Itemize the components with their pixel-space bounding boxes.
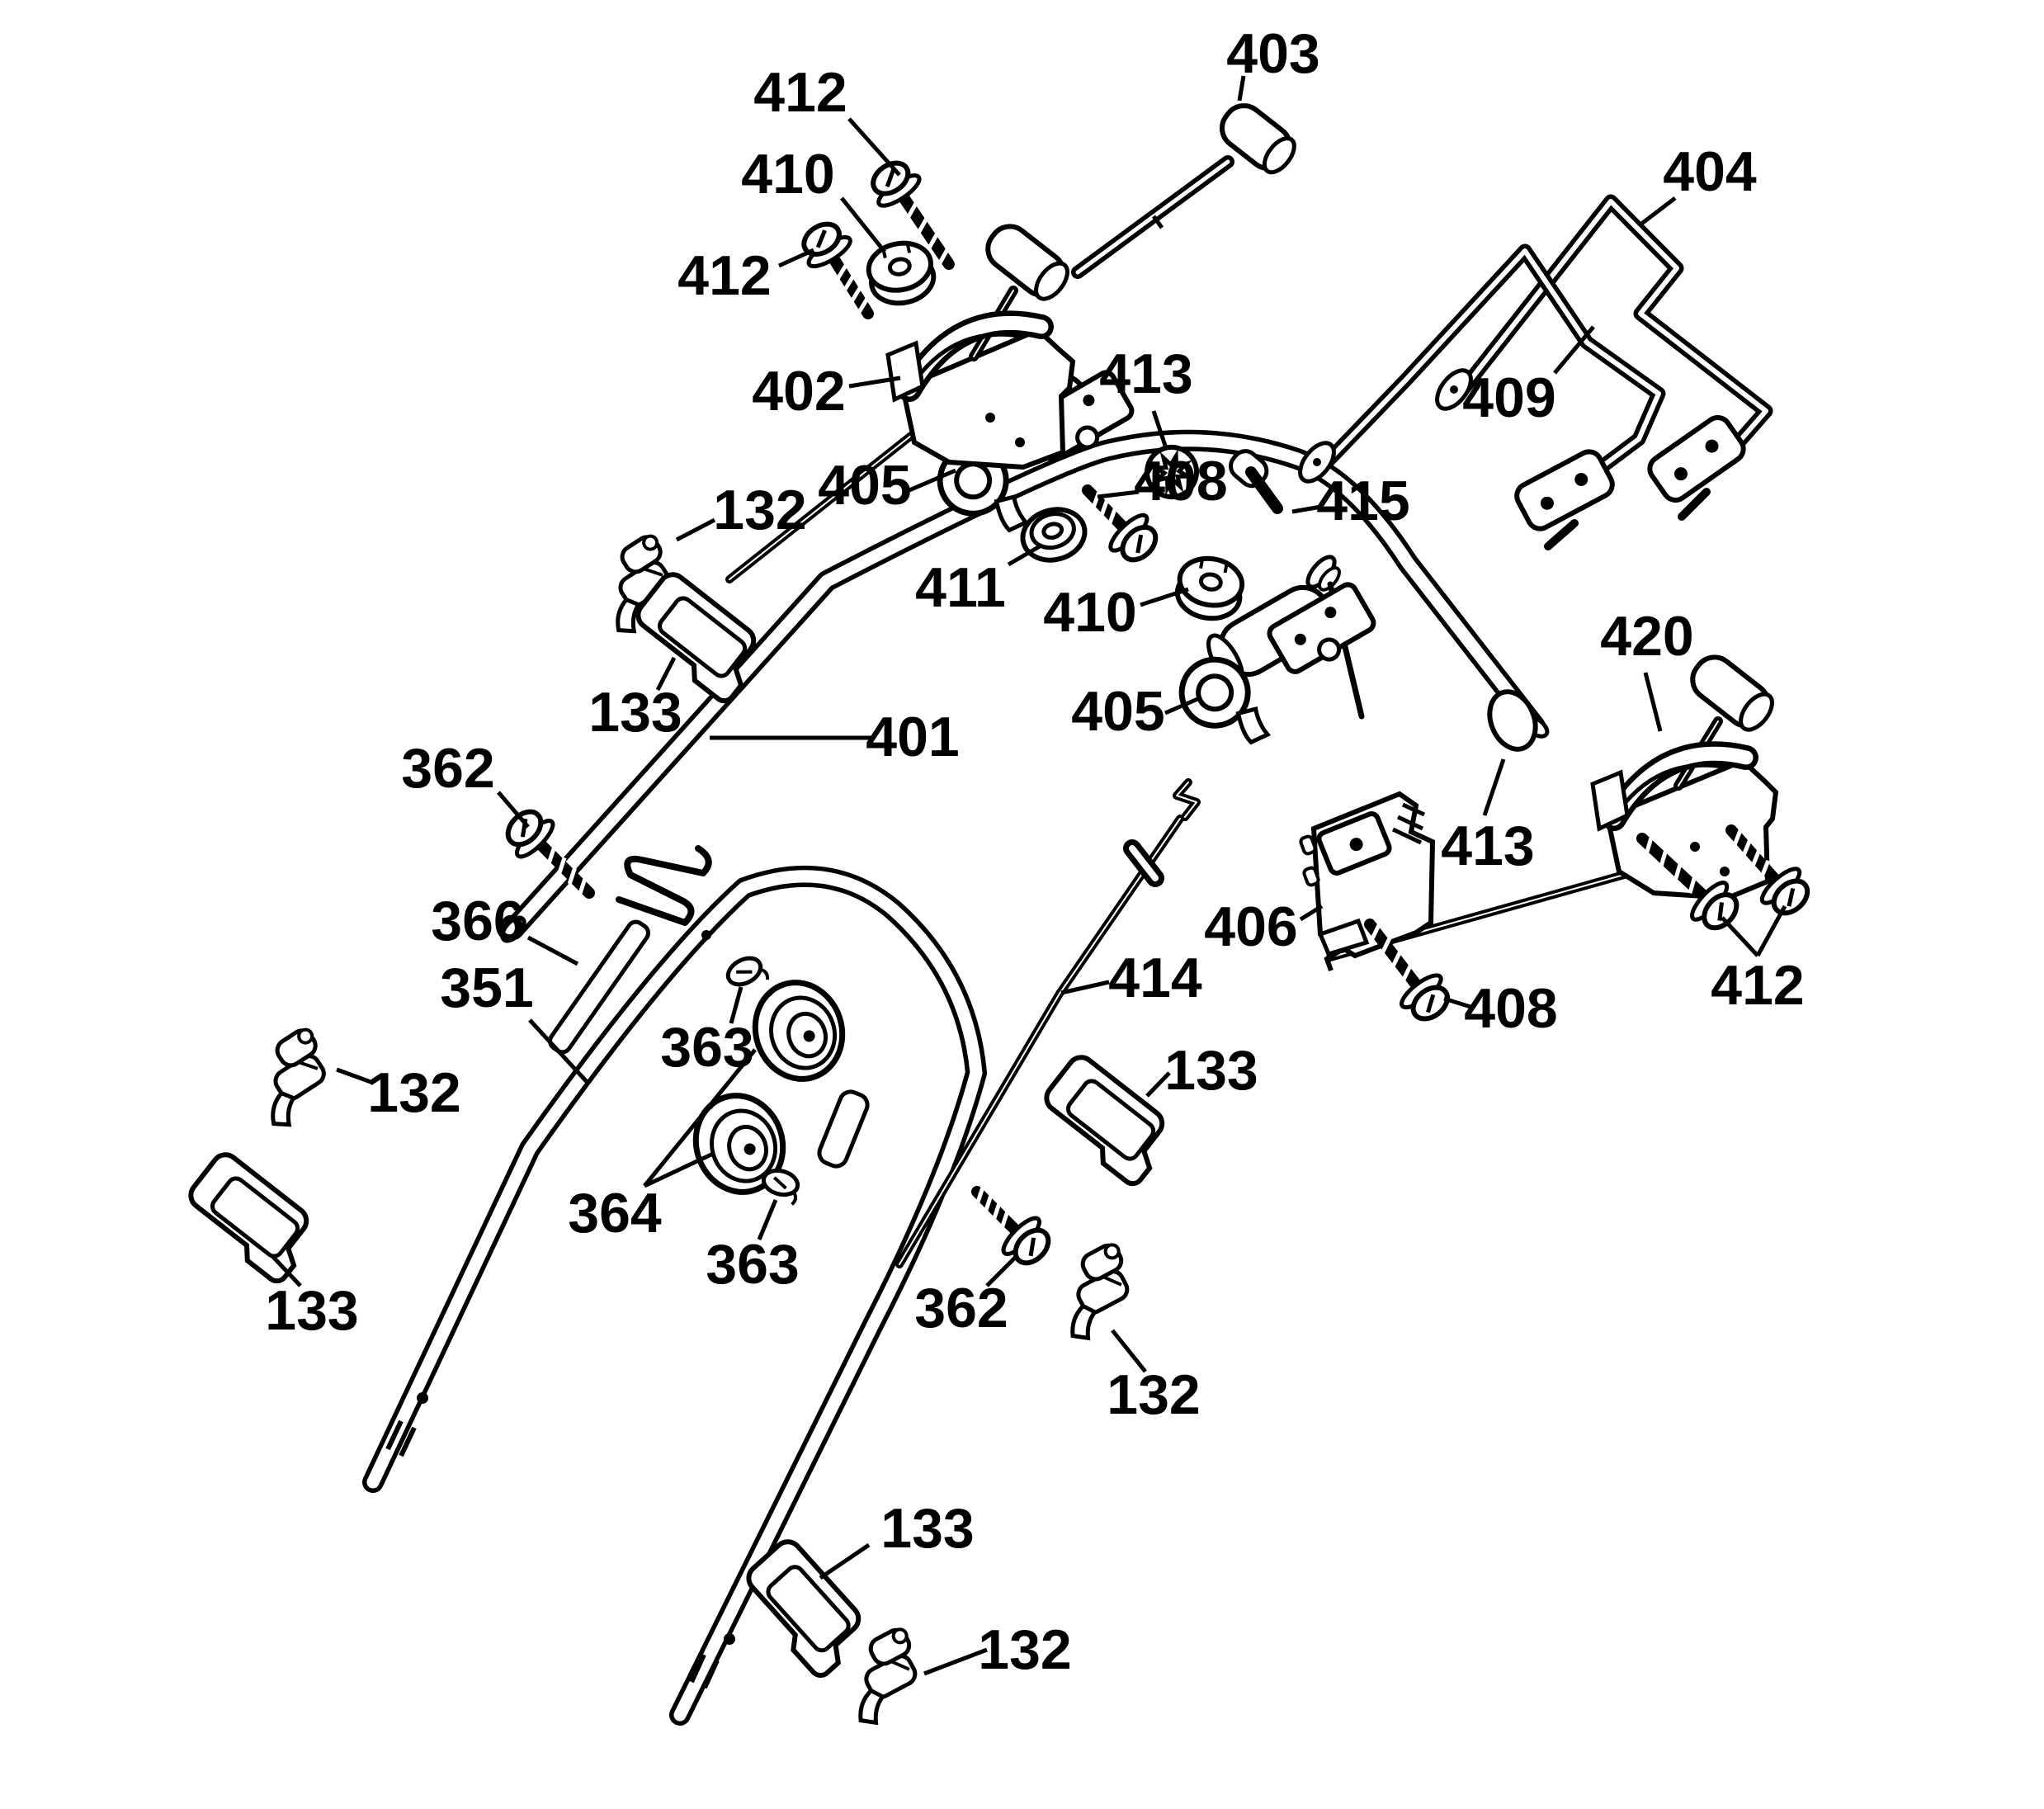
nut-411 — [1017, 503, 1091, 567]
cap-413 — [1481, 685, 1543, 756]
part-label-404: 404 — [1663, 140, 1757, 203]
part-label-133: 133 — [265, 1279, 358, 1342]
leader-line-133 — [820, 1545, 869, 1578]
part-label-420: 420 — [1600, 605, 1693, 668]
parts-diagram-page: 4124104124024034044134094051324084154114… — [0, 0, 2044, 1809]
cable-414 — [899, 782, 1197, 1264]
part-label-413: 413 — [1441, 815, 1534, 877]
leader-line-413 — [1485, 759, 1503, 815]
leader-line-420 — [1645, 673, 1660, 731]
part-label-411: 411 — [915, 556, 1006, 619]
leader-line-412 — [1758, 906, 1785, 956]
grommet-133-b — [1034, 1052, 1179, 1188]
leader-line-132 — [677, 520, 715, 540]
part-label-351: 351 — [440, 956, 533, 1019]
leader-line-366 — [528, 938, 578, 964]
pin-403 — [1078, 97, 1301, 272]
cable-clip-132-b — [238, 1026, 347, 1131]
part-label-410: 410 — [741, 143, 834, 205]
part-label-362: 362 — [401, 737, 494, 800]
leader-line-412 — [1722, 918, 1758, 956]
grip-pad — [816, 1089, 871, 1169]
part-label-405: 405 — [1071, 680, 1164, 743]
cam-363-lower — [759, 1167, 801, 1205]
part-label-364: 364 — [568, 1182, 662, 1245]
part-label-133: 133 — [588, 681, 682, 744]
part-label-402: 402 — [752, 360, 845, 423]
part-label-401: 401 — [866, 706, 959, 768]
handle-knob-364-upper — [743, 971, 854, 1090]
part-label-412: 412 — [753, 61, 847, 124]
part-label-405: 405 — [818, 454, 911, 517]
nut-410-upper — [864, 238, 937, 309]
screw-362-center — [960, 1174, 1058, 1273]
part-label-363: 363 — [706, 1233, 799, 1296]
part-label-413: 413 — [1099, 342, 1192, 405]
part-label-133: 133 — [880, 1497, 974, 1560]
switch-block-406 — [1300, 794, 1433, 956]
cable-clip-132-d — [830, 1626, 936, 1729]
part-label-132: 132 — [1107, 1363, 1200, 1426]
leader-line-412 — [849, 119, 899, 175]
part-label-132: 132 — [978, 1618, 1071, 1681]
part-label-412: 412 — [1711, 954, 1804, 1017]
part-label-133: 133 — [1164, 1039, 1258, 1102]
cam-363-upper — [724, 952, 769, 995]
part-label-414: 414 — [1108, 947, 1202, 1009]
part-label-362: 362 — [914, 1277, 1008, 1339]
part-label-403: 403 — [1226, 22, 1319, 85]
part-label-415: 415 — [1316, 470, 1409, 532]
cable-clip-132-c — [1042, 1241, 1148, 1344]
diagram-svg: 4124104124024034044134094051324084154114… — [0, 0, 2044, 1809]
part-label-408: 408 — [1464, 977, 1557, 1040]
part-label-410: 410 — [1043, 581, 1136, 644]
part-label-132: 132 — [713, 479, 806, 541]
part-label-409: 409 — [1462, 366, 1555, 429]
leader-line-408 — [1098, 492, 1139, 497]
part-label-412: 412 — [677, 244, 771, 307]
grommet-133-c — [178, 1150, 323, 1285]
part-label-366: 366 — [431, 890, 524, 952]
part-label-408: 408 — [1134, 450, 1227, 512]
part-label-406: 406 — [1204, 895, 1297, 958]
part-label-132: 132 — [367, 1061, 460, 1124]
